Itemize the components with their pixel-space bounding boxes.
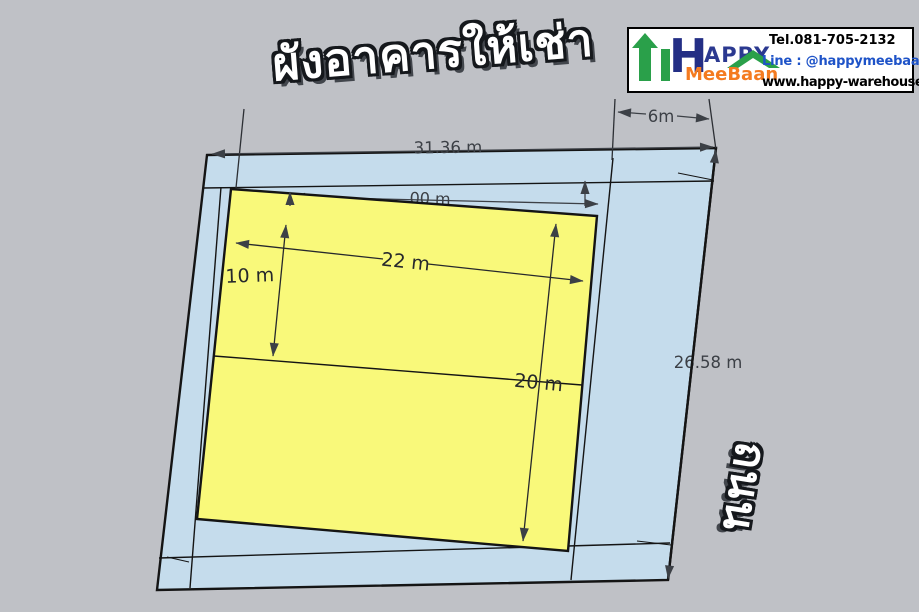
phone-number: Tel.081-705-2132 <box>769 33 896 48</box>
dim-bay-depth-label: 10 m <box>225 264 274 288</box>
dim-right-strip-line-left <box>618 112 646 114</box>
dim-plot-top-width-label: 31.36 m <box>414 138 483 158</box>
website-url: www.happy-warehouse.com <box>762 75 919 90</box>
page: 31.36 m 6m 00 m 22 m 10 m 20 m 26.58 m ผ… <box>0 0 919 612</box>
green-up-arrow-icon <box>632 33 658 83</box>
dim-right-strip-label: 6m <box>648 107 675 126</box>
dim-right-strip-line-right <box>677 116 709 119</box>
dim-plot-right-depth-label: 26.58 m <box>674 353 743 372</box>
line-account: Line : @happymeebaan <box>762 54 919 69</box>
company-logo: H APPY MeeBaan Tel.081-705-2132 Line : @… <box>627 27 914 93</box>
